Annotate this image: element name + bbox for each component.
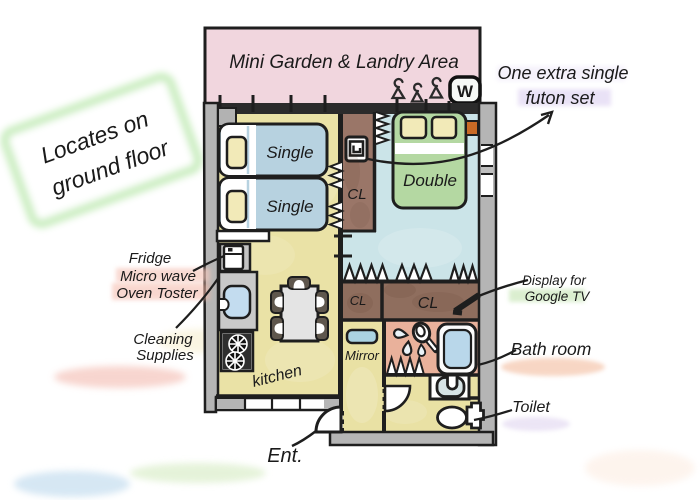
svg-text:Mirror: Mirror: [345, 348, 380, 363]
svg-text:Cleaning: Cleaning: [133, 331, 193, 348]
svg-text:Mini Garden & Landry Area: Mini Garden & Landry Area: [229, 52, 459, 73]
svg-text:Supplies: Supplies: [136, 347, 194, 364]
svg-text:Ent.: Ent.: [267, 445, 303, 467]
svg-text:CL: CL: [347, 186, 366, 203]
svg-text:Single: Single: [266, 143, 313, 162]
svg-text:Single: Single: [266, 197, 313, 216]
svg-text:CL: CL: [418, 295, 438, 312]
svg-text:Bath room: Bath room: [511, 339, 592, 359]
svg-text:CL: CL: [350, 293, 367, 308]
svg-text:Double: Double: [403, 171, 457, 190]
svg-text:Toilet: Toilet: [512, 399, 550, 416]
svg-text:Oven Toster: Oven Toster: [116, 285, 198, 302]
svg-text:W: W: [457, 82, 474, 101]
svg-text:Display for: Display for: [522, 273, 586, 288]
svg-text:Google TV: Google TV: [525, 289, 592, 304]
svg-text:Micro wave: Micro wave: [120, 268, 196, 285]
svg-text:One extra single: One extra single: [497, 63, 628, 83]
svg-text:futon set: futon set: [525, 88, 595, 108]
svg-text:Fridge: Fridge: [129, 250, 172, 267]
